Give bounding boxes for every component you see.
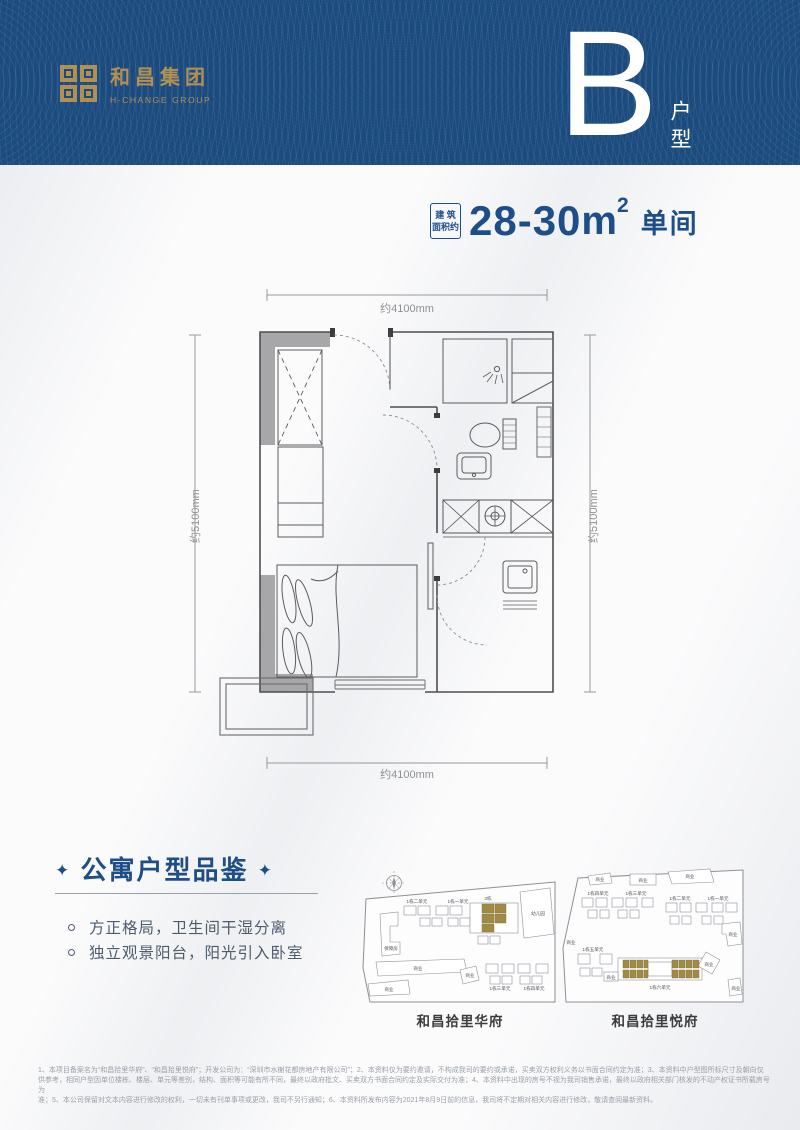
brand-name-cn: 和昌集团 — [110, 61, 211, 90]
map-label: 1栋一单元 — [448, 898, 469, 905]
shower-head-icon — [483, 366, 503, 384]
door-jambs — [330, 328, 440, 581]
bullet-icon — [68, 949, 75, 956]
map-label: 3栋 — [484, 895, 492, 902]
cabinet — [278, 447, 323, 537]
unit-type-letter: B — [558, 8, 658, 158]
map-label: 保障房 — [384, 945, 398, 952]
map-label: 商业 — [566, 939, 576, 946]
logo-mark-icon — [60, 65, 97, 102]
site-map-huafu: 1栋二单元 1栋一单元 3栋 幼儿园 保障房 商业 商业 商业 1栋三单元 1栋… — [360, 866, 560, 1011]
map-name-yuefu: 和昌拾里悦府 — [555, 1010, 755, 1030]
map-label: 商业 — [384, 986, 394, 993]
site-boundary — [563, 870, 743, 1002]
feature-item: 方正格局，卫生间干湿分离 — [68, 916, 287, 938]
footnotes: 1、本项目备案名为“和昌拾里华府”、“和昌拾里悦府”；开发公司为：“深圳市水榭花… — [38, 1066, 774, 1106]
map-label: 1栋三单元 — [626, 890, 647, 897]
area-tag-box: 建 筑 面积约 — [430, 203, 461, 239]
kitchen-sink — [503, 561, 537, 609]
map-label: 1栋六单元 — [650, 984, 671, 991]
bathroom — [443, 339, 553, 479]
door-swing-arcs — [334, 335, 487, 645]
map-label: 1栋四单元 — [524, 985, 545, 992]
map-label: 商业 — [595, 876, 605, 883]
feature-text: 独立观景阳台，阳光引入卧室 — [89, 941, 304, 963]
map-label: 1栋四单元 — [588, 890, 609, 897]
bed — [277, 565, 417, 679]
dim-right-label: 约5100mm — [587, 489, 600, 543]
map-label: 商业 — [685, 873, 695, 880]
room-type-label: 单间 — [641, 202, 699, 241]
features-title-text: 公寓户型品鉴 — [80, 855, 248, 885]
footnote-line: 1、本项目备案名为“和昌拾里华府”、“和昌拾里悦府”；开发公司为：“深圳市水榭花… — [38, 1066, 774, 1076]
area-superscript: 2 — [617, 194, 629, 218]
map-label: 商业 — [413, 965, 423, 972]
dim-left-label: 约5100mm — [189, 489, 202, 543]
bullet-icon — [68, 924, 75, 931]
dim-bottom-label: 约4100mm — [380, 768, 434, 781]
compass-icon — [382, 871, 406, 895]
footnote-line: 供参考，相同户型因单位楼栋、楼层、单元等差别，结构、面积等可能有所不同，最终以政… — [38, 1076, 774, 1096]
area-tag-line1: 建 筑 — [435, 209, 456, 221]
map-label: 幼儿园 — [531, 910, 545, 917]
area-unit: m — [581, 199, 617, 244]
map-label: 商业 — [704, 961, 714, 968]
map-label: 商业 — [728, 931, 738, 938]
map-label: 1栋五单元 — [583, 946, 604, 953]
features-title: ✦ 公寓户型品鉴 ✦ — [55, 850, 274, 887]
brochure-page: 和昌集团 H-CHANGE GROUP B 户型 建 筑 面积约 28-30 m… — [0, 0, 800, 1130]
star-icon: ✦ — [258, 861, 274, 880]
map-label: 1栋二单元 — [407, 898, 428, 905]
map-label: 1栋一单元 — [708, 895, 729, 902]
footnote-line: 准；5、本公司保留对文本内容进行修改的权利，一切未有刊单事项或更改，我司不另行通… — [38, 1096, 774, 1106]
area-headline: 建 筑 面积约 28-30 m 2 单间 — [430, 197, 699, 245]
dim-top-label: 约4100mm — [380, 302, 434, 315]
area-tag-line2: 面积约 — [432, 221, 459, 233]
floor-plan: 约4100mm 约4100mm 约5100mm 约5100mm — [185, 285, 600, 785]
window-sill — [335, 680, 425, 689]
feature-text: 方正格局，卫生间干湿分离 — [89, 916, 287, 938]
map-label: 1栋二单元 — [670, 895, 691, 902]
map-label: 商业 — [465, 972, 475, 979]
header-banner: 和昌集团 H-CHANGE GROUP B 户型 — [0, 0, 800, 165]
area-value: 28-30 — [469, 197, 581, 245]
star-icon: ✦ — [55, 861, 71, 880]
wardrobe — [278, 350, 322, 445]
brand-name-en: H-CHANGE GROUP — [110, 95, 211, 105]
unit-type-suffix: 户型 — [664, 100, 694, 156]
kitchen-counter — [443, 500, 553, 537]
brand-logo: 和昌集团 H-CHANGE GROUP — [60, 61, 211, 105]
map-label: 1栋三单元 — [490, 985, 511, 992]
map-name-huafu: 和昌拾里华府 — [360, 1010, 560, 1030]
map-label: 商业 — [731, 985, 741, 992]
brand-text: 和昌集团 H-CHANGE GROUP — [110, 61, 211, 105]
bath-rack — [537, 407, 551, 457]
features-divider — [55, 893, 318, 894]
dimension-lines — [189, 289, 596, 769]
map-label: 商业 — [638, 877, 648, 884]
sliding-panel — [428, 543, 433, 609]
site-map-yuefu: 商业 商业 商业 1栋四单元 1栋三单元 1栋二单元 1栋一单元 商业 商业 1… — [560, 856, 750, 1006]
feature-item: 独立观景阳台，阳光引入卧室 — [68, 941, 304, 963]
map-label: 商业 — [606, 974, 616, 981]
